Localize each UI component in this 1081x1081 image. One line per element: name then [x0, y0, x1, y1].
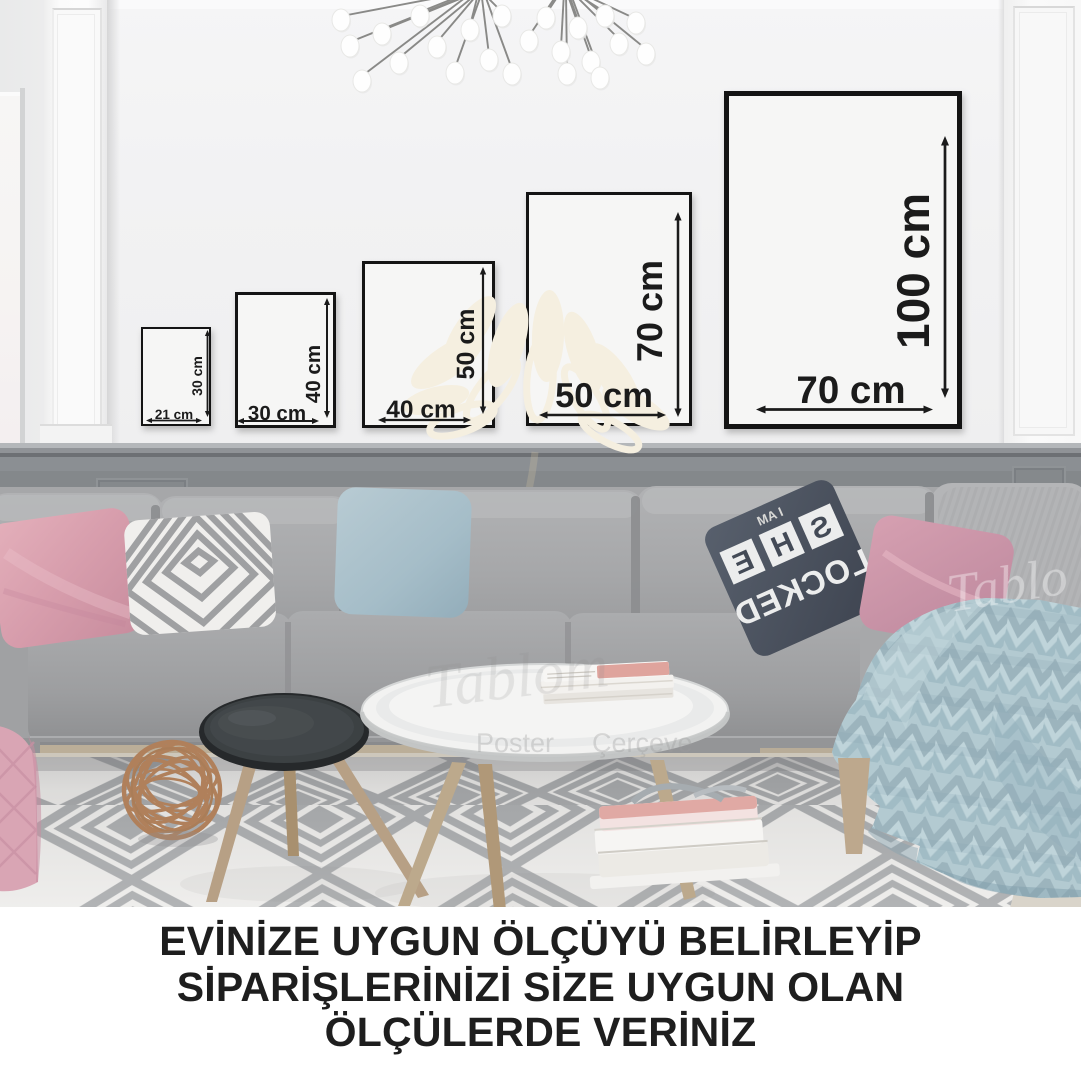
svg-text:50 cm: 50 cm: [452, 309, 480, 380]
svg-text:70 cm: 70 cm: [629, 260, 670, 362]
svg-text:Çerçeve: Çerçeve: [592, 728, 693, 758]
svg-text:70 cm: 70 cm: [796, 369, 905, 412]
svg-text:30 cm: 30 cm: [189, 356, 205, 396]
svg-text:Poster: Poster: [476, 728, 554, 758]
svg-text:40 cm: 40 cm: [302, 345, 325, 403]
svg-text:50 cm: 50 cm: [555, 377, 653, 415]
svg-text:100 cm: 100 cm: [887, 193, 939, 349]
